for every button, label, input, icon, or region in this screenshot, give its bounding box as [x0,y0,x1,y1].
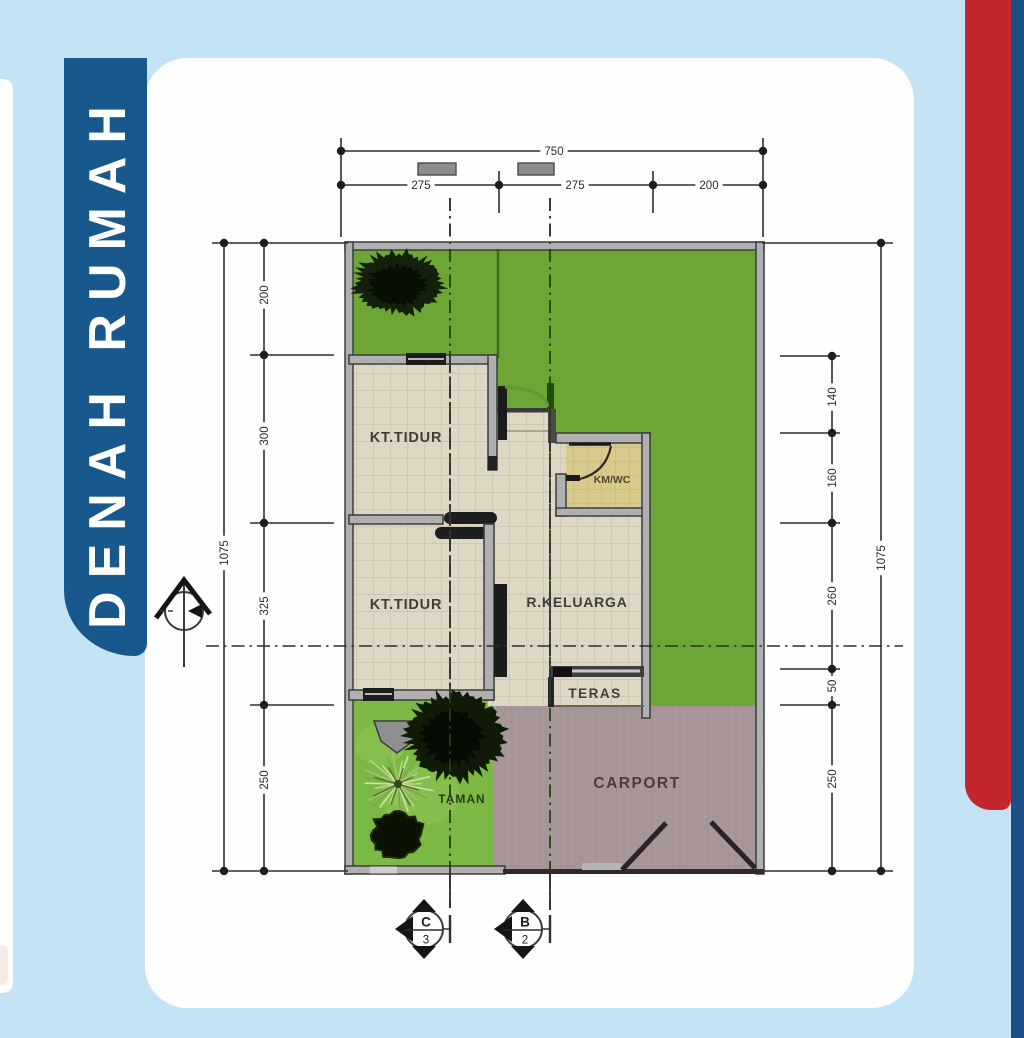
svg-text:1075: 1075 [876,545,888,571]
svg-text:275: 275 [411,180,430,192]
svg-text:KT.TIDUR: KT.TIDUR [370,430,442,446]
svg-text:200: 200 [699,180,718,192]
svg-text:B: B [520,915,530,930]
svg-text:260: 260 [827,586,839,605]
svg-text:300: 300 [259,426,271,445]
svg-text:250: 250 [259,770,271,789]
svg-text:1075: 1075 [219,540,231,566]
svg-text:3: 3 [423,935,429,947]
svg-text:250: 250 [827,769,839,788]
svg-text:R.KELUARGA: R.KELUARGA [526,594,627,610]
svg-text:KM/WC: KM/WC [594,474,631,486]
svg-text:50: 50 [827,680,839,693]
svg-text:TERAS: TERAS [568,686,621,701]
svg-text:325: 325 [259,596,271,615]
svg-text:750: 750 [544,146,563,158]
svg-text:200: 200 [259,285,271,304]
svg-text:KT.TIDUR: KT.TIDUR [370,597,442,613]
svg-text:CARPORT: CARPORT [593,775,680,792]
svg-text:160: 160 [827,468,839,487]
svg-text:TAMAN: TAMAN [438,792,485,806]
svg-text:2: 2 [522,935,528,947]
svg-text:140: 140 [827,387,839,406]
svg-text:C: C [421,915,431,930]
svg-text:275: 275 [565,180,584,192]
